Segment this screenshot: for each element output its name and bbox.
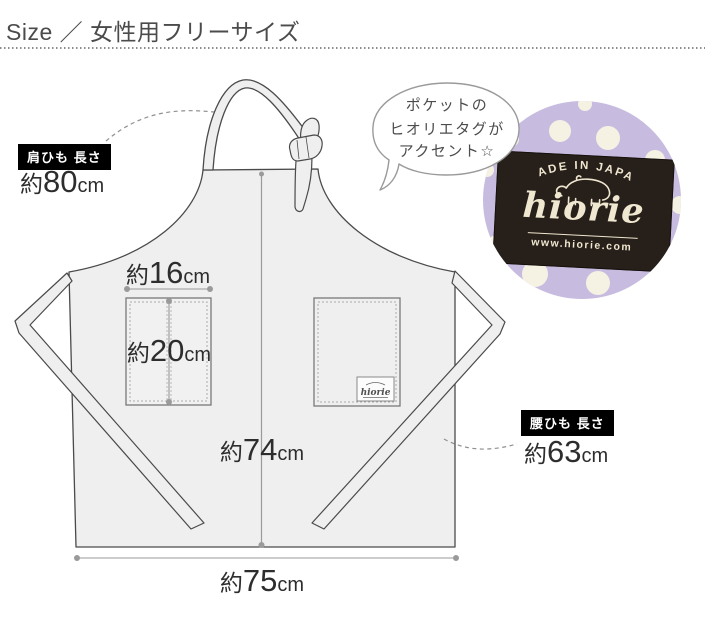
measure-dot <box>259 172 264 177</box>
waist-strap-label: 腰ひも 長さ <box>521 410 614 436</box>
apron-diagram: hiorie <box>0 0 705 620</box>
bubble-line-1: ポケットの <box>375 94 519 115</box>
strap-knot-wrap <box>289 135 322 161</box>
shoulder-strap-value: 約80cm <box>20 166 104 197</box>
bubble-line-3: アクセント☆ <box>375 140 519 161</box>
shoulder-leader-line <box>106 111 214 141</box>
hiorie-woven-tag: MADE IN JAPAN hiorie www.hiorie.com <box>492 150 675 272</box>
bottom-width-measure <box>74 555 459 561</box>
body-length-value: 約74cm <box>212 434 312 465</box>
body-width-value: 約75cm <box>212 565 312 596</box>
pocket-tag-brand-text: hiorie <box>361 388 391 398</box>
waist-strap-value: 約63cm <box>524 436 608 467</box>
measure-dot <box>259 542 265 548</box>
bubble-line-2: ヒオリエタグが <box>375 118 519 139</box>
pocket-brand-tag: hiorie <box>357 377 394 401</box>
pocket-depth-value: 約20cm <box>119 335 219 366</box>
size-chart-image: Size ／ 女性用フリーサイズ <box>0 0 705 620</box>
pocket-width-value: 約16cm <box>118 257 218 288</box>
